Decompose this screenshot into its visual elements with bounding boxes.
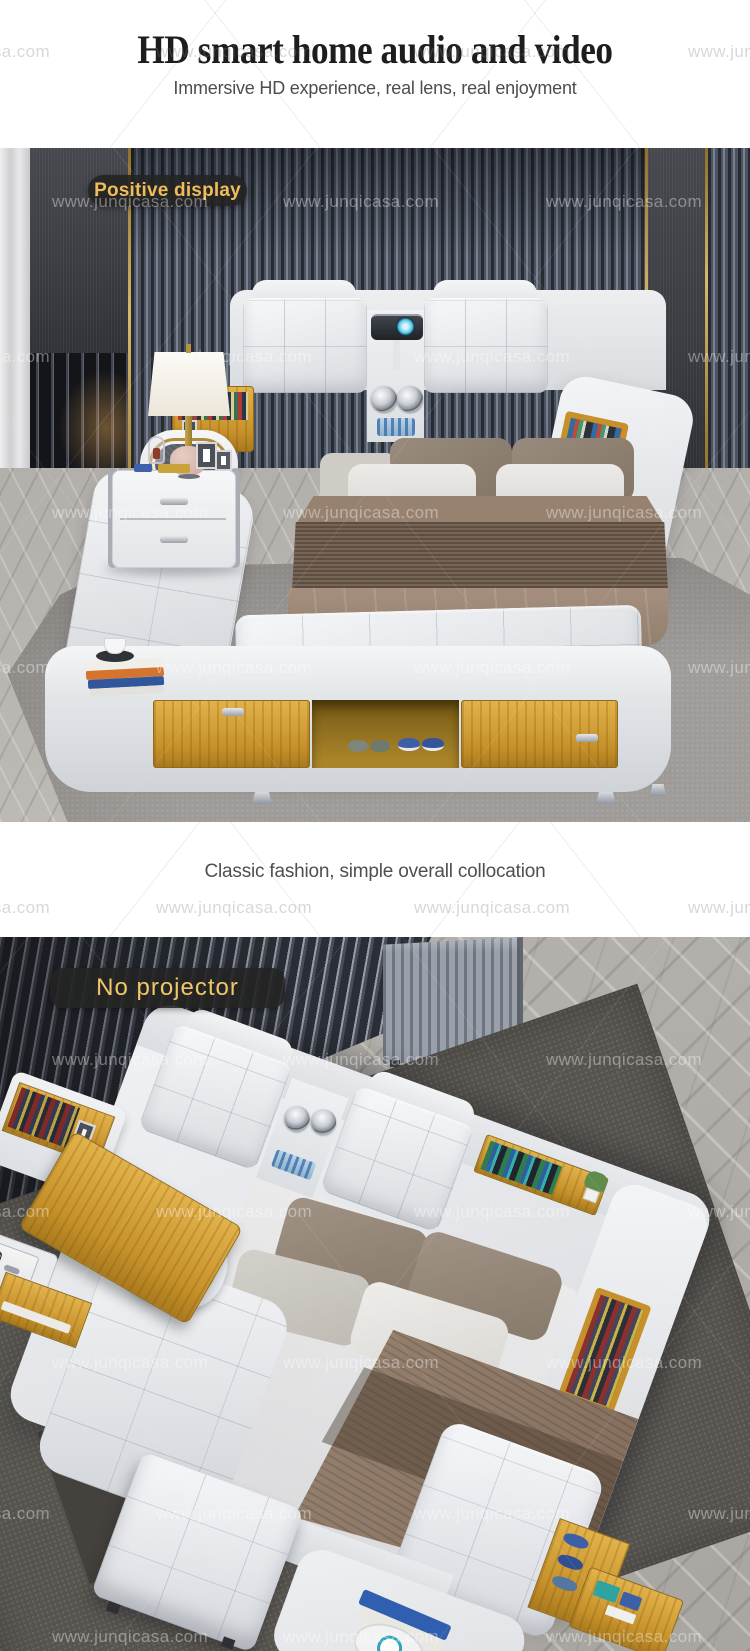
photo1-label-badge: Positive display [88,175,247,206]
page-subtitle: Immersive HD experience, real lens, real… [0,78,750,99]
base-shoe-bay [312,700,459,768]
photo-no-projector-view: No projector www.junqicasa.comwww.junqic… [0,937,750,1651]
watermark-layer-header: www.junqicasa.comwww.junqicasa.comwww.ju… [0,0,750,148]
nightstand-handle-top [160,498,188,505]
shoe-sneaker-1 [398,738,420,751]
photo2-label-text: No projector [96,974,239,1002]
watermark-text: www.junqicasa.com [414,898,570,918]
lamp-finial [186,344,191,353]
wall-slats-right [708,148,750,478]
control-panel [377,418,415,436]
nightstand-drawer-seam [120,518,226,520]
photo-front-view: Positive display www.junqicasa.comwww.ju… [0,148,750,822]
watermark-lattice [0,0,750,148]
divider-section: Classic fashion, simple overall collocat… [0,822,750,937]
bed-foot-leg-2 [596,792,616,804]
lamp-shade [148,352,230,416]
lamp-base-disk [178,474,200,479]
nightstand-handle-bottom [160,536,188,543]
decor-blue-box [134,464,152,472]
product-detail-image: HD smart home audio and video Immersive … [0,0,750,1651]
drawer-right-handle [576,734,598,742]
watermark-text: www.junqicasa.com [156,898,312,918]
photo-frame-1 [196,442,217,469]
headboard-cushion-left [243,298,367,393]
decor-gold-books [158,464,190,473]
photo1-label-text: Positive display [94,180,241,202]
shoe-loafer-2 [370,740,390,752]
drawer-left-handle [222,708,244,716]
projector-lens [396,317,415,336]
bed-foot-leg-3 [650,784,666,796]
duvet-top [295,496,665,526]
headboard-cushion-right [424,298,548,393]
photo2-label-badge: No projector [50,968,285,1008]
page-title: HD smart home audio and video [45,26,705,73]
divider-caption: Classic fashion, simple overall collocat… [0,861,750,883]
decor-cloche-item [153,448,160,459]
speaker-left [371,386,397,412]
header-section: HD smart home audio and video Immersive … [0,0,750,148]
watermark-text: www.junqicasa.com [0,42,50,62]
photo-frame-2 [215,450,232,471]
curtain [0,148,30,493]
projector-stand [393,340,400,370]
speaker-right [397,386,423,412]
duvet-dark-band [292,522,668,590]
bed-foot-leg-1 [252,792,272,804]
lamp-stem [185,416,192,450]
watermark-text: www.junqicasa.com [0,898,50,918]
watermark-text: www.junqicasa.com [688,898,750,918]
shoe-loafer-1 [348,740,368,752]
shoe-sneaker-2 [422,738,444,751]
